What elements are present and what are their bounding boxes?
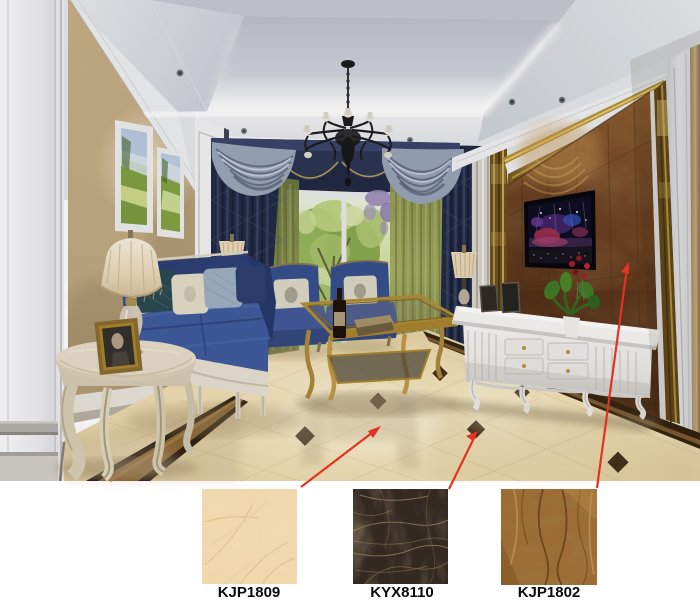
svg-text:KYX8110: KYX8110 [370,584,433,601]
svg-text:KJP1802: KJP1802 [518,584,581,601]
svg-text:KJP1809: KJP1809 [218,584,281,601]
